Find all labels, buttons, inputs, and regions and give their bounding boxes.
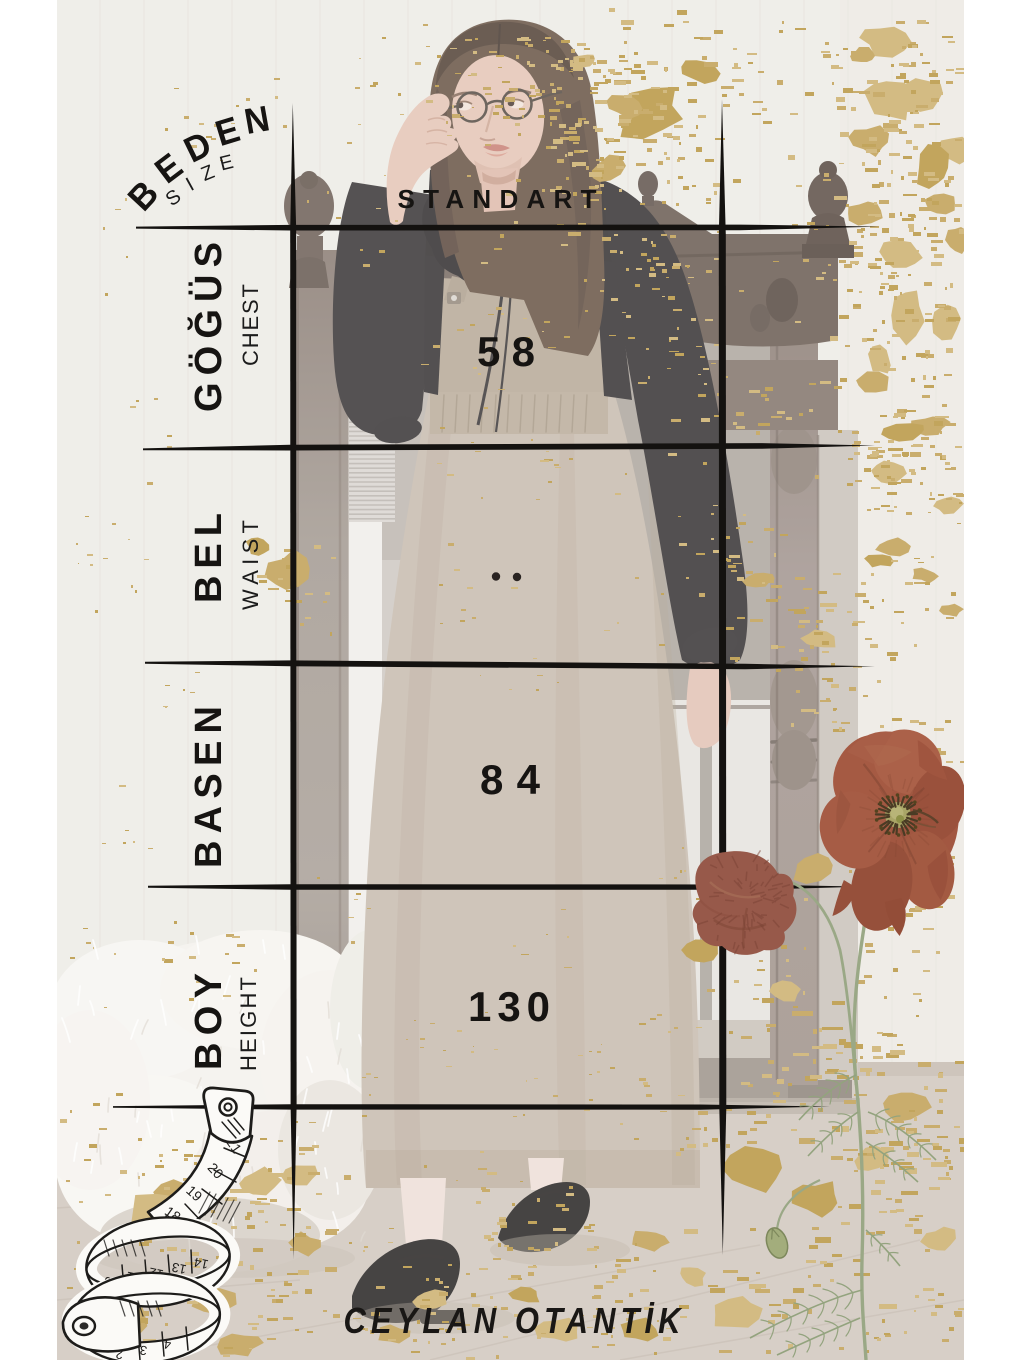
svg-text:14: 14 (192, 1255, 209, 1273)
svg-text:BEL: BEL (188, 513, 230, 603)
svg-text:HEIGHT: HEIGHT (236, 977, 261, 1071)
svg-text:WAIST: WAIST (238, 520, 263, 610)
svg-text:CHEST: CHEST (238, 284, 263, 366)
svg-text:130: 130 (468, 983, 550, 1030)
svg-text:BASEN: BASEN (188, 706, 230, 868)
svg-text:BOY: BOY (188, 973, 230, 1070)
svg-text:GÖĞÜS: GÖĞÜS (186, 242, 230, 412)
